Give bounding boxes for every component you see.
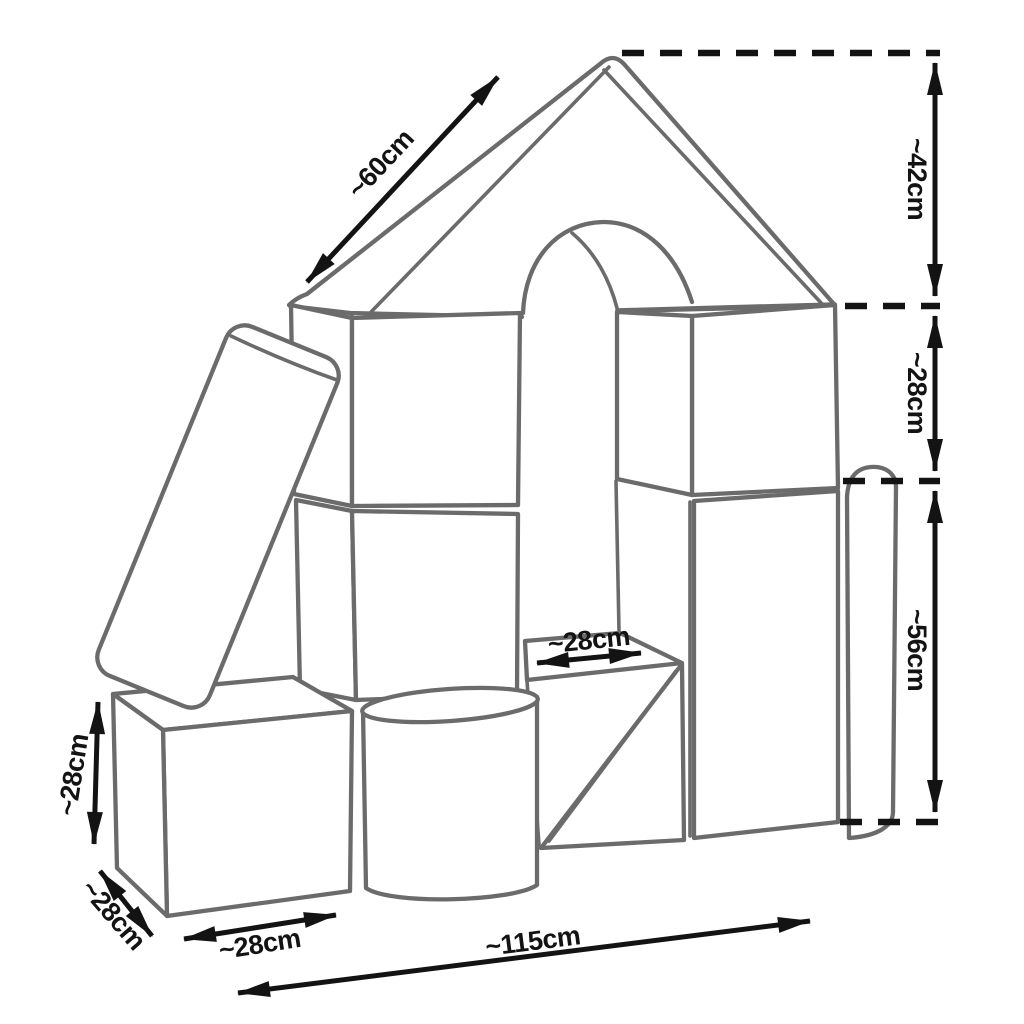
total-width-label: ~115cm	[484, 920, 582, 962]
tall-right-block	[690, 491, 838, 838]
cylinder-block	[361, 683, 539, 899]
wedge-block	[525, 633, 684, 848]
diagram-canvas: ~60cm ~42cm ~28cm ~56cm ~28cm ~28cm ~28c…	[0, 0, 1024, 1024]
bottom-left-cube	[113, 677, 352, 916]
roof-height-label: ~42cm	[902, 138, 932, 220]
dim-cube-height-arrow	[94, 702, 98, 844]
cube-height-label: ~28cm	[52, 732, 95, 818]
lower-right-height-label: ~56cm	[902, 609, 932, 691]
middle-left-cube	[296, 500, 518, 700]
upper-right-height-label: ~28cm	[902, 352, 932, 434]
curved-right-block	[847, 467, 896, 838]
blocks-dimension-diagram: ~60cm ~42cm ~28cm ~56cm ~28cm ~28cm ~28c…	[0, 0, 1024, 1024]
roof-slope-length-label: ~60cm	[342, 123, 420, 204]
block-drawing	[91, 58, 896, 916]
